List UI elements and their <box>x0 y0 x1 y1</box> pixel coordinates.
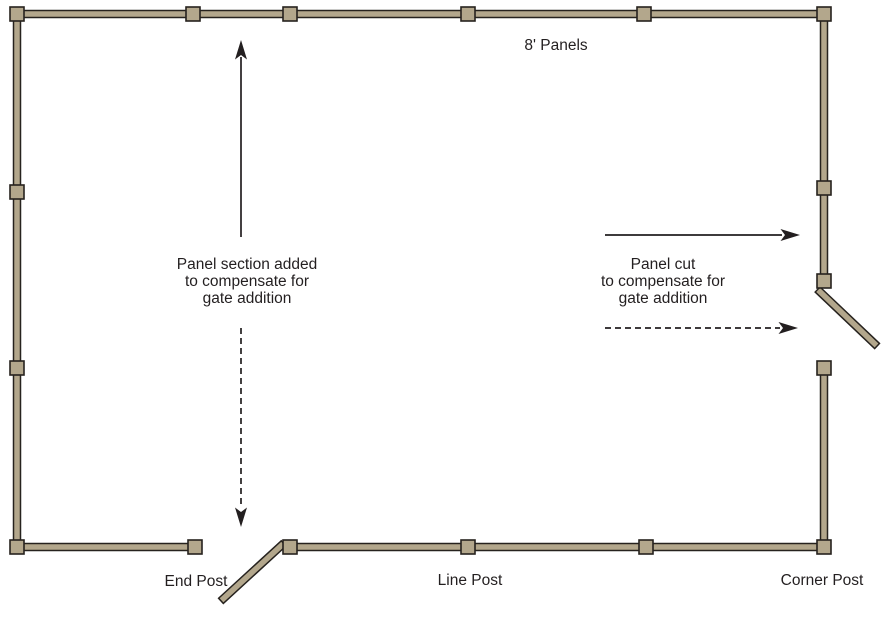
corner-post-bottom-left <box>10 540 24 554</box>
corner-post-bottom-right <box>817 540 831 554</box>
down-arrow-head <box>235 508 247 528</box>
end-post-label: End Post <box>165 573 229 590</box>
bottom-rail-right <box>287 544 828 551</box>
right-rail-lower <box>821 365 828 551</box>
right-annotation-line1: Panel cut <box>631 256 696 273</box>
line-post <box>639 540 653 554</box>
right-dashed-arrow-head <box>779 322 799 334</box>
bottom-rail-left <box>14 544 199 551</box>
line-post <box>637 7 651 21</box>
gates <box>219 287 880 603</box>
fence-diagram-canvas: 8' Panels Panel section added to compens… <box>0 0 889 619</box>
bottom-gate-leaf <box>219 541 286 604</box>
line-post-label: Line Post <box>438 572 503 589</box>
line-post <box>10 361 24 375</box>
line-post <box>186 7 200 21</box>
labels: 8' Panels Panel section added to compens… <box>165 37 864 590</box>
top-rail <box>14 11 828 18</box>
end-post <box>188 540 202 554</box>
gate-latch-post-right <box>817 361 831 375</box>
right-rail-upper <box>821 11 828 284</box>
left-annotation-line3: gate addition <box>203 290 292 307</box>
gate-hinge-post-bottom <box>283 540 297 554</box>
top-panels-label: 8' Panels <box>524 37 588 54</box>
left-rail <box>14 11 21 551</box>
left-annotation-line1: Panel section added <box>177 256 317 273</box>
right-annotation-line2: to compensate for <box>601 273 725 290</box>
right-solid-arrow-head <box>781 229 801 241</box>
up-arrow-head <box>235 40 247 60</box>
line-post <box>10 185 24 199</box>
left-annotation-line2: to compensate for <box>185 273 309 290</box>
fence-layout-diagram: 8' Panels Panel section added to compens… <box>0 0 889 619</box>
gate-hinge-post-right <box>817 274 831 288</box>
corner-post-top-right <box>817 7 831 21</box>
line-post <box>461 540 475 554</box>
line-post <box>283 7 297 21</box>
corner-post-label: Corner Post <box>781 572 864 589</box>
corner-post-top-left <box>10 7 24 21</box>
right-annotation-line3: gate addition <box>619 290 708 307</box>
right-gate-leaf <box>815 287 879 349</box>
line-post <box>817 181 831 195</box>
line-post <box>461 7 475 21</box>
